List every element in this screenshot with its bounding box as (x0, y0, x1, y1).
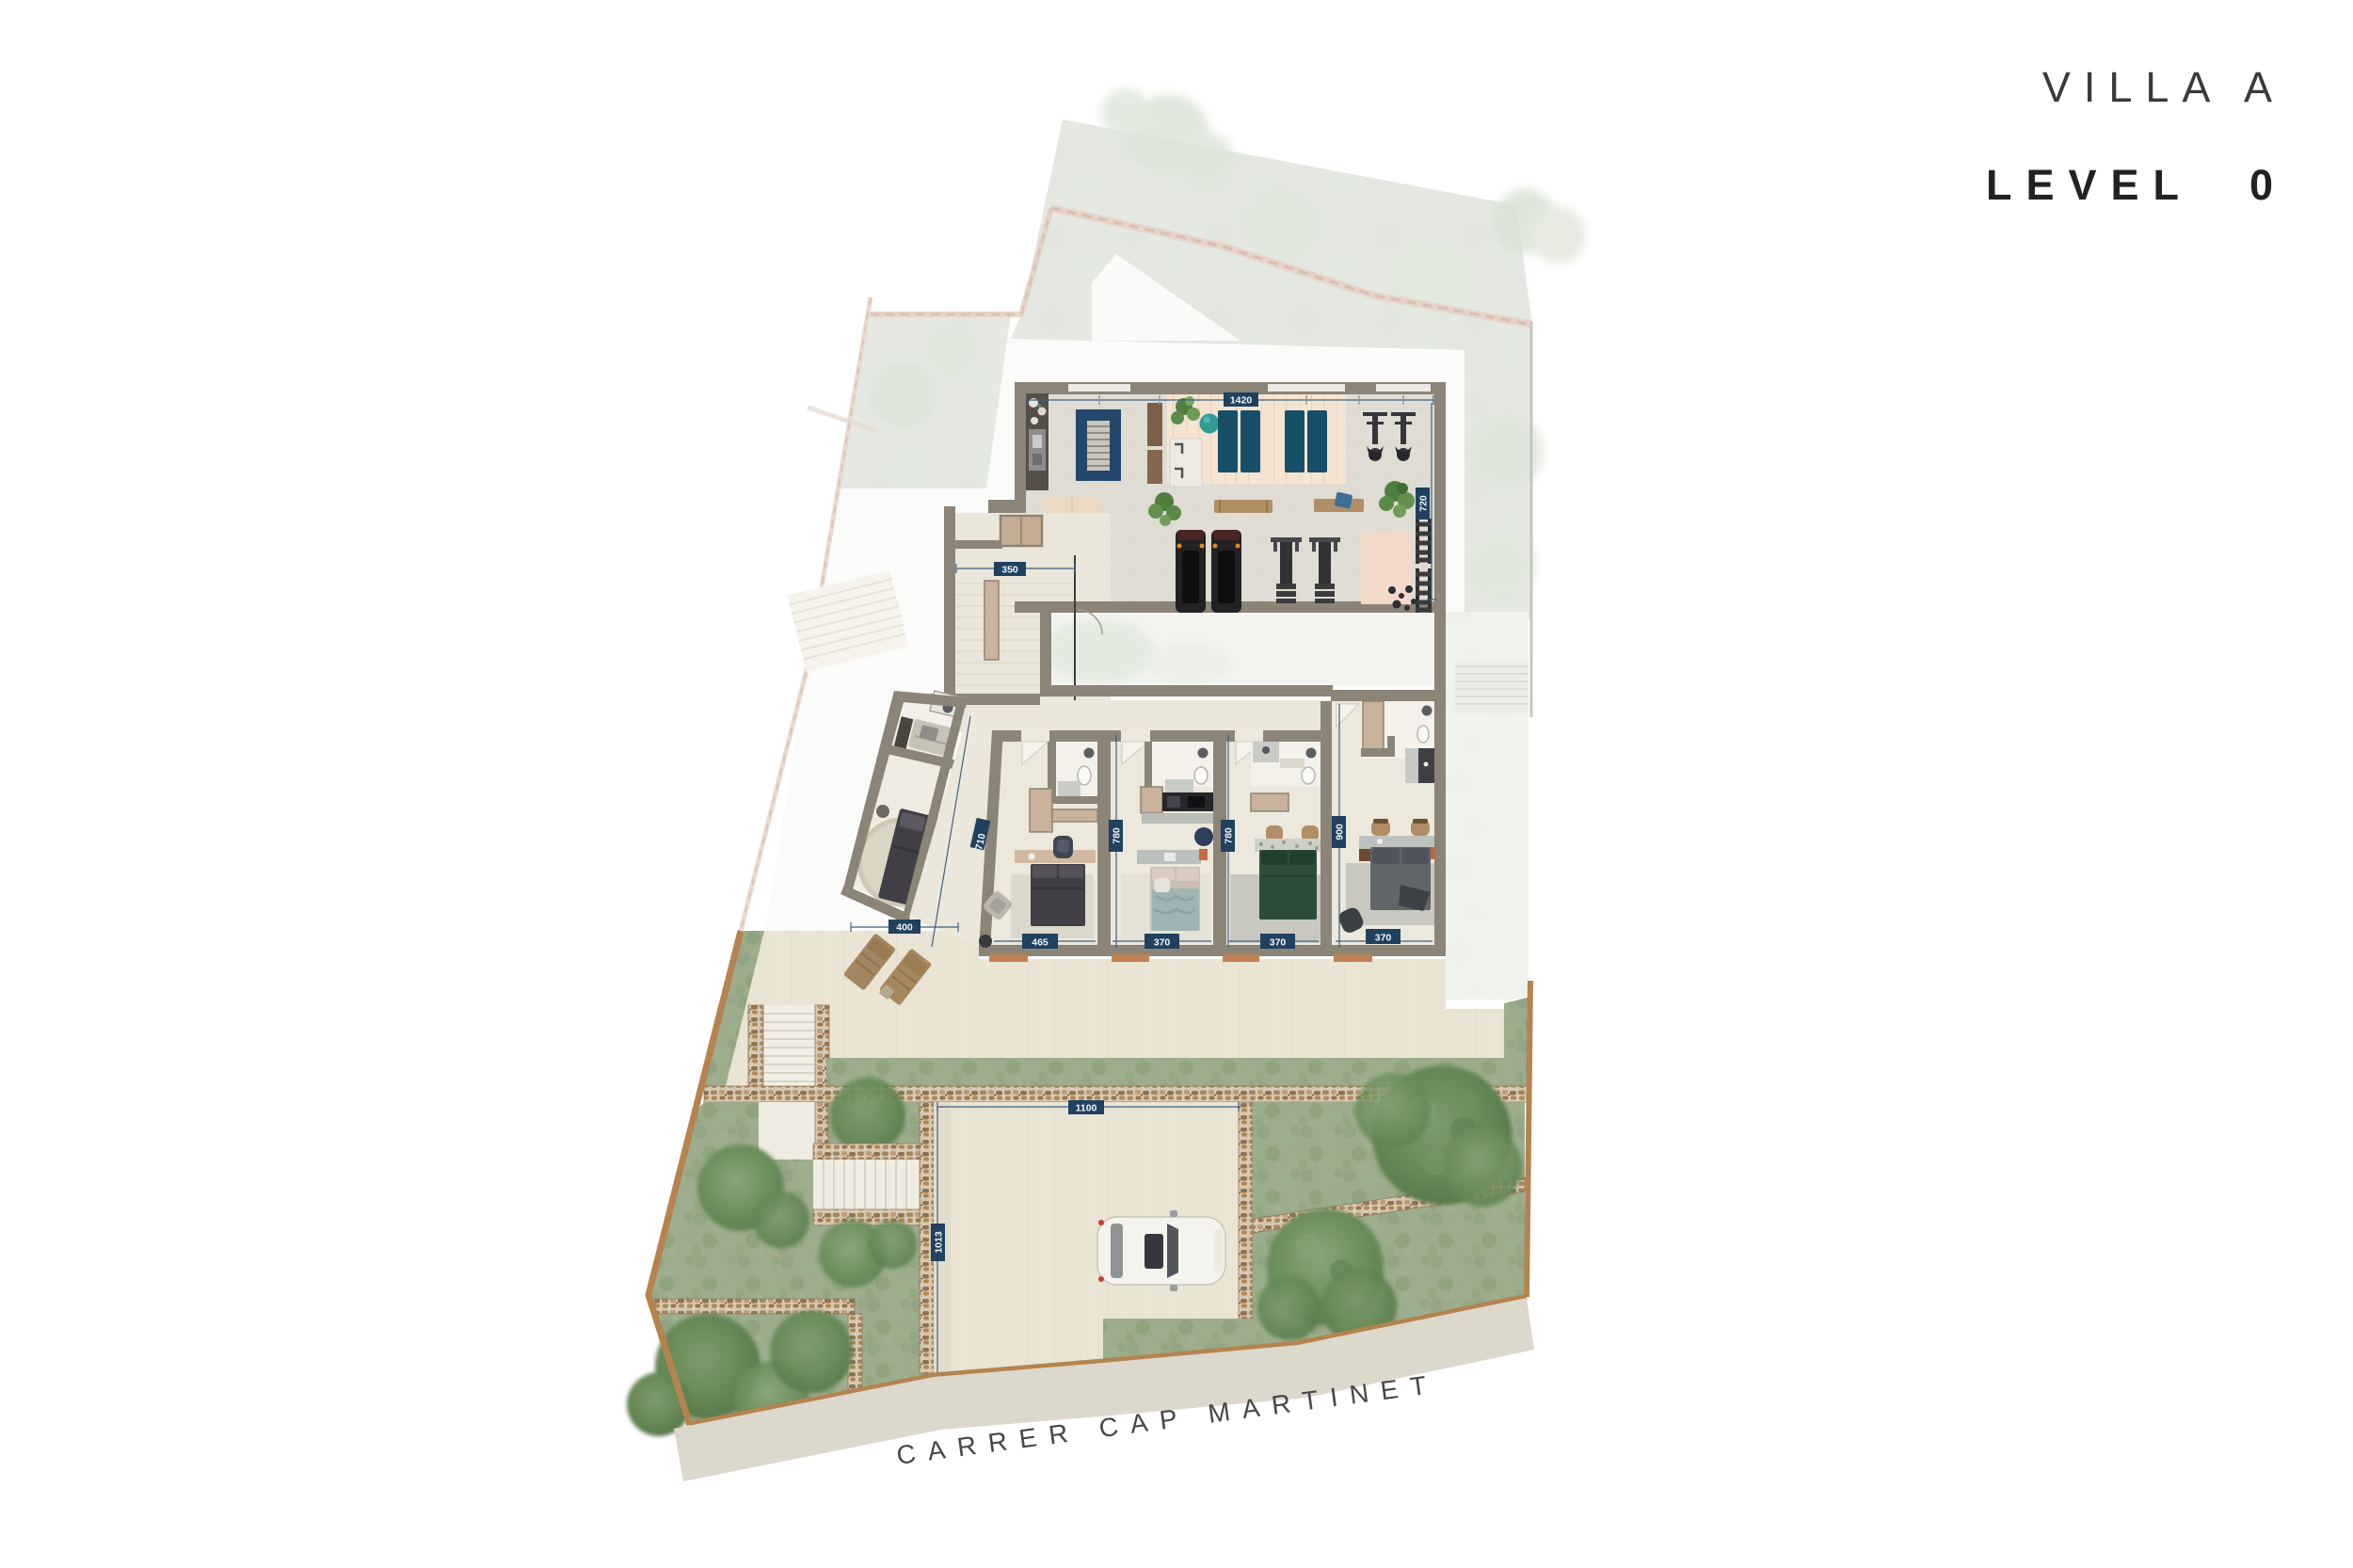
svg-text:1100: 1100 (1076, 1103, 1097, 1114)
svg-text:370: 370 (1154, 937, 1171, 949)
svg-text:780: 780 (1112, 827, 1123, 844)
svg-text:LEVEL 0: LEVEL 0 (1986, 161, 2287, 209)
svg-text:780: 780 (1224, 827, 1235, 844)
svg-text:350: 350 (1001, 565, 1018, 576)
svg-text:370: 370 (1270, 937, 1287, 949)
svg-text:1420: 1420 (1230, 395, 1253, 407)
svg-text:VILLA A: VILLA A (2042, 63, 2285, 111)
svg-text:900: 900 (1335, 824, 1346, 840)
svg-text:465: 465 (1032, 937, 1048, 949)
svg-text:370: 370 (1375, 933, 1392, 944)
svg-text:720: 720 (1418, 495, 1430, 512)
svg-text:400: 400 (896, 922, 913, 934)
svg-text:1013: 1013 (934, 1231, 945, 1254)
